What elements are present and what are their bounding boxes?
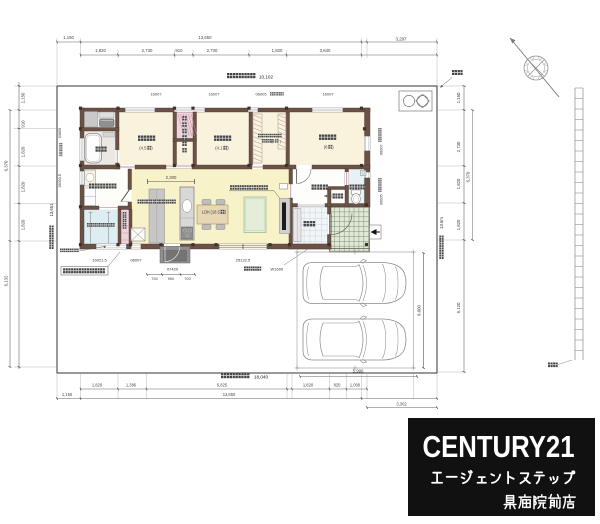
svg-text:2,300: 2,300 [166, 175, 177, 180]
svg-text:16007: 16007 [208, 92, 220, 97]
svg-text:900: 900 [168, 276, 175, 281]
svg-text:2,730: 2,730 [207, 48, 218, 53]
svg-text:1,820: 1,820 [303, 383, 314, 388]
svg-text:3,302: 3,302 [396, 402, 407, 407]
svg-text:6,132: 6,132 [4, 275, 9, 286]
svg-text:16007: 16007 [322, 92, 334, 97]
svg-text:13,650: 13,650 [223, 392, 236, 397]
svg-text:13,650: 13,650 [198, 35, 212, 40]
svg-text:16021.5: 16021.5 [92, 258, 107, 263]
svg-text:1,820: 1,820 [456, 219, 461, 230]
svg-text:700: 700 [184, 276, 191, 281]
svg-text:): ) [280, 139, 281, 143]
svg-text:910: 910 [175, 48, 183, 53]
svg-text:1,150: 1,150 [62, 392, 73, 397]
svg-text:8,000: 8,000 [417, 305, 422, 316]
svg-text:03605: 03605 [58, 128, 62, 139]
svg-text:820: 820 [334, 383, 342, 388]
svg-text:1,820: 1,820 [21, 181, 26, 192]
svg-text:1,820: 1,820 [272, 48, 283, 53]
svg-text:(18.5: (18.5 [211, 210, 221, 215]
svg-text:1,150: 1,150 [63, 35, 74, 40]
svg-text:1,150: 1,150 [21, 92, 26, 103]
svg-text:1,820: 1,820 [95, 48, 106, 53]
svg-text:06007: 06007 [130, 258, 142, 263]
svg-text:CENTURY21: CENTURY21 [423, 429, 575, 464]
svg-text:W1600: W1600 [271, 267, 284, 272]
svg-text:13,651: 13,651 [49, 203, 54, 216]
svg-text:LDK: LDK [202, 210, 210, 215]
svg-text:730: 730 [151, 276, 158, 281]
svg-text:910: 910 [21, 120, 26, 128]
svg-text:2,730: 2,730 [142, 48, 153, 53]
svg-text:06005: 06005 [379, 194, 383, 205]
svg-text:1,000: 1,000 [350, 383, 361, 388]
svg-text:2,730: 2,730 [456, 141, 461, 152]
svg-text:06005: 06005 [255, 92, 267, 97]
svg-text:10,102: 10,102 [259, 75, 273, 80]
svg-text:1,820: 1,820 [456, 178, 461, 189]
svg-text:13.6m: 13.6m [439, 217, 444, 229]
svg-text:25122.5: 25122.5 [236, 258, 251, 263]
svg-text:6,120: 6,120 [456, 302, 461, 313]
svg-text:1,386: 1,386 [126, 383, 137, 388]
svg-text:07420: 07420 [167, 267, 179, 272]
svg-text:18,040: 18,040 [254, 375, 268, 380]
svg-text:(3: (3 [271, 139, 274, 143]
svg-text:5,990: 5,990 [353, 369, 364, 374]
svg-text:3,640: 3,640 [320, 48, 331, 53]
svg-text:16053.5: 16053.5 [58, 174, 62, 188]
svg-text:6,370: 6,370 [4, 160, 9, 171]
svg-text:06007: 06007 [379, 144, 383, 155]
svg-text:6,370: 6,370 [466, 171, 471, 182]
svg-text:1,820: 1,820 [21, 219, 26, 230]
svg-text:16007: 16007 [150, 92, 162, 97]
svg-text:6,825: 6,825 [217, 383, 228, 388]
svg-text:(4.1: (4.1 [215, 146, 223, 151]
svg-text:1,150: 1,150 [456, 92, 461, 103]
svg-text:1,820: 1,820 [21, 146, 26, 157]
svg-text:(4.5: (4.5 [139, 146, 147, 151]
svg-text:1,820: 1,820 [92, 383, 103, 388]
svg-text:3,297: 3,297 [396, 37, 407, 42]
